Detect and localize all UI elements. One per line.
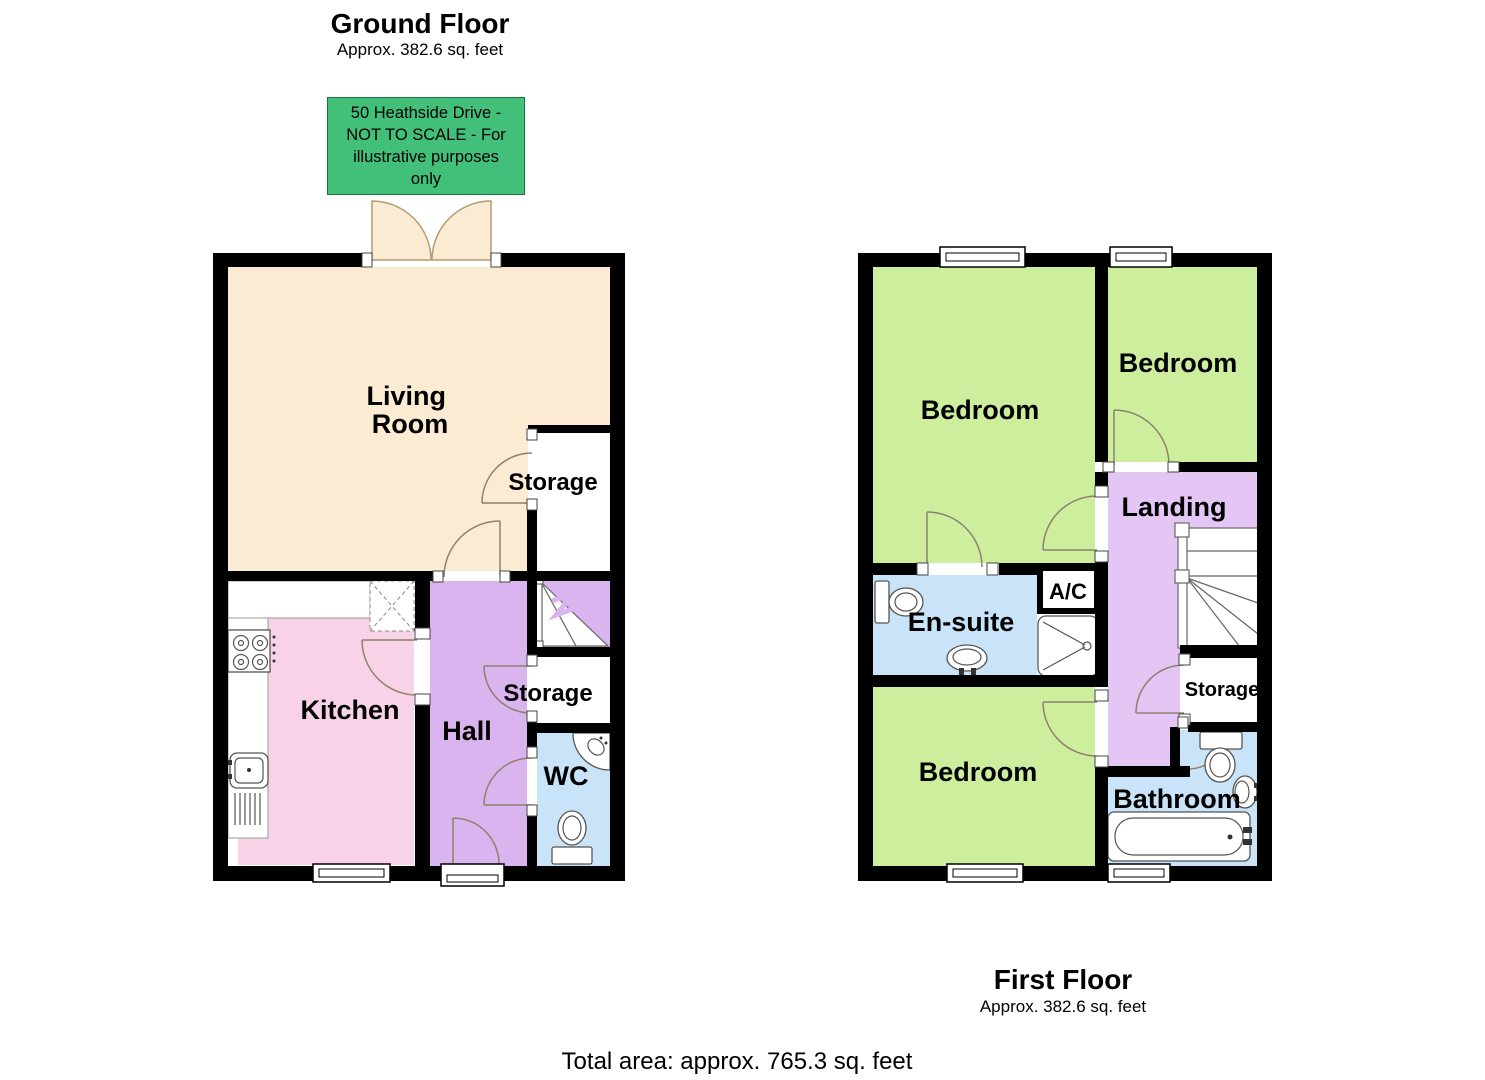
label-bedroom-rear: Bedroom [1119,348,1238,378]
label-storage-ff: Storage [1185,679,1259,701]
label-landing: Landing [1122,492,1227,522]
first-floor-plan: Bedroom Bedroom Landing En-suite A/C Sto… [858,247,1272,882]
bathroom-window [1108,864,1170,882]
ground-floor-title: Ground Floor [270,8,570,40]
label-storage-lower: Storage [503,680,592,707]
scale-note-line: illustrative purposes [353,146,499,168]
shower-icon [1038,616,1098,676]
label-living-room: Living Room [366,381,453,439]
stove-icon [228,630,276,672]
scale-note-line: NOT TO SCALE - For [346,124,506,146]
label-bathroom: Bathroom [1113,784,1241,814]
bathtub-icon [1108,812,1252,861]
scale-note-box: 50 Heathside Drive - NOT TO SCALE - For … [327,97,525,195]
bedroom-third-window [947,864,1023,882]
ground-floor-plan: Living Room Storage Kitchen Hall Storage… [213,201,625,886]
label-ensuite: En-suite [908,607,1015,637]
ground-floor-area-note: Approx. 382.6 sq. feet [270,40,570,60]
living-room-area-lower [228,425,528,571]
floorplan-page: Living Room Storage Kitchen Hall Storage… [0,0,1485,1080]
storage-upper-area [537,433,610,571]
first-floor-title: First Floor [913,964,1213,996]
kitchen-window [313,864,390,882]
total-area-note: Total area: approx. 765.3 sq. feet [437,1048,1037,1076]
label-kitchen: Kitchen [300,695,399,725]
scale-note-line: only [411,168,441,190]
floorplan-drawing: Living Room Storage Kitchen Hall Storage… [0,0,1485,1080]
bedroom-front-window [940,247,1025,267]
label-wc: WC [544,761,589,791]
kitchen-counter-top [228,581,370,618]
appliance-dashed-unit-icon [370,581,414,631]
french-door-left-leaf [372,201,431,260]
label-bedroom-front: Bedroom [921,395,1040,425]
scale-note-line: 50 Heathside Drive - [351,102,501,124]
label-bedroom-third: Bedroom [919,757,1038,787]
first-floor-area-note: Approx. 382.6 sq. feet [913,997,1213,1017]
french-door-right-leaf [432,201,491,260]
label-hall: Hall [442,716,492,746]
kitchen-counter-left [228,581,268,838]
stairs-first-icon [1175,523,1258,648]
label-ac: A/C [1049,579,1087,604]
front-door-sill [441,864,504,886]
bedroom-rear-window [1110,247,1172,267]
label-storage-upper: Storage [508,469,597,496]
landing-area-bottom [1108,647,1180,766]
landing-area-mid [1108,528,1179,647]
